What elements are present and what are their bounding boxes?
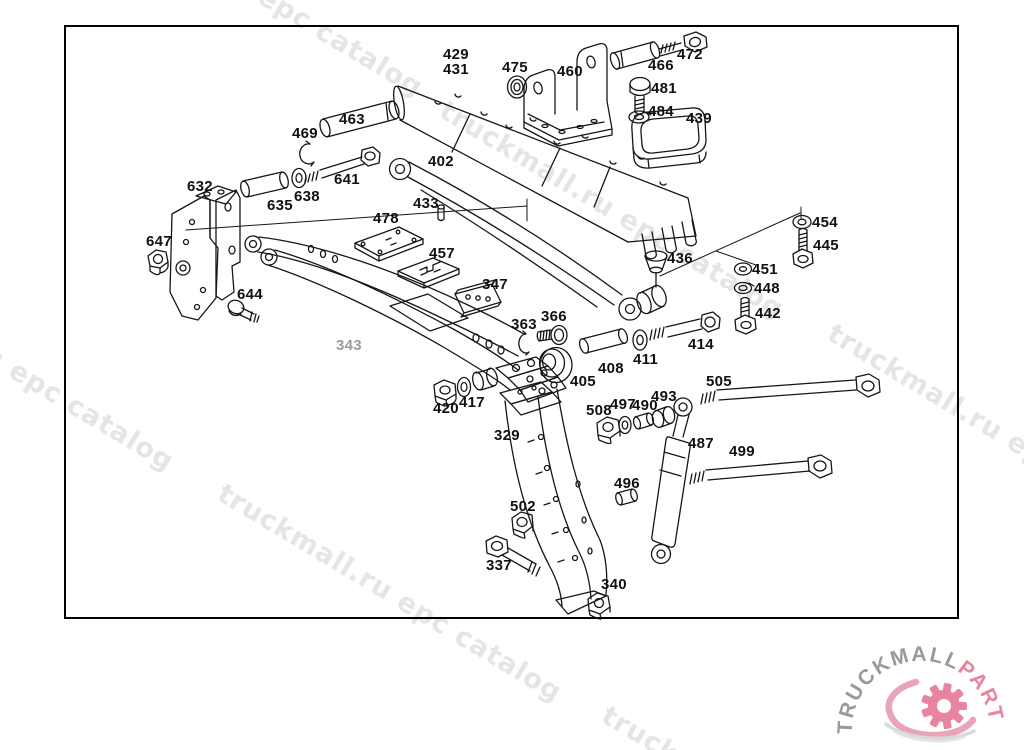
part-label-417: 417 (459, 395, 485, 410)
part-label-644: 644 (237, 287, 263, 302)
part-label-414: 414 (688, 337, 714, 352)
part-label-632: 632 (187, 179, 213, 194)
part-label-363: 363 (511, 317, 537, 332)
part-label-343: 343 (336, 338, 362, 353)
part-label-475: 475 (502, 60, 528, 75)
part-label-442: 442 (755, 306, 781, 321)
part-label-420: 420 (433, 401, 459, 416)
part-label-484: 484 (648, 104, 674, 119)
part-label-457: 457 (429, 246, 455, 261)
part-label-431: 431 (443, 62, 469, 77)
part-label-433: 433 (413, 196, 439, 211)
part-label-469: 469 (292, 126, 318, 141)
part-label-340: 340 (601, 577, 627, 592)
part-label-347: 347 (482, 277, 508, 292)
part-label-635: 635 (267, 198, 293, 213)
catalog-page: truckmall.ru epc catalogtruckmall.ru epc… (0, 0, 1024, 750)
part-label-505: 505 (706, 374, 732, 389)
part-labels-layer: 4294314754604664724814844394634696416386… (0, 0, 1024, 750)
part-label-496: 496 (614, 476, 640, 491)
part-label-451: 451 (752, 262, 778, 277)
part-label-329: 329 (494, 428, 520, 443)
part-label-448: 448 (754, 281, 780, 296)
part-label-454: 454 (812, 215, 838, 230)
part-label-408: 408 (598, 361, 624, 376)
part-label-502: 502 (510, 499, 536, 514)
part-label-487: 487 (688, 436, 714, 451)
part-label-472: 472 (677, 47, 703, 62)
part-label-460: 460 (557, 64, 583, 79)
part-label-439: 439 (686, 111, 712, 126)
part-label-463: 463 (339, 112, 365, 127)
part-label-436: 436 (667, 251, 693, 266)
part-label-508: 508 (586, 403, 612, 418)
part-label-366: 366 (541, 309, 567, 324)
part-label-402: 402 (428, 154, 454, 169)
part-label-466: 466 (648, 58, 674, 73)
part-label-641: 641 (334, 172, 360, 187)
part-label-638: 638 (294, 189, 320, 204)
part-label-411: 411 (633, 352, 658, 367)
part-label-445: 445 (813, 238, 839, 253)
part-label-493: 493 (651, 389, 677, 404)
part-label-337: 337 (486, 558, 512, 573)
part-label-481: 481 (651, 81, 677, 96)
part-label-499: 499 (729, 444, 755, 459)
part-label-478: 478 (373, 211, 399, 226)
part-label-647: 647 (146, 234, 172, 249)
part-label-405: 405 (570, 374, 596, 389)
part-label-429: 429 (443, 47, 469, 62)
